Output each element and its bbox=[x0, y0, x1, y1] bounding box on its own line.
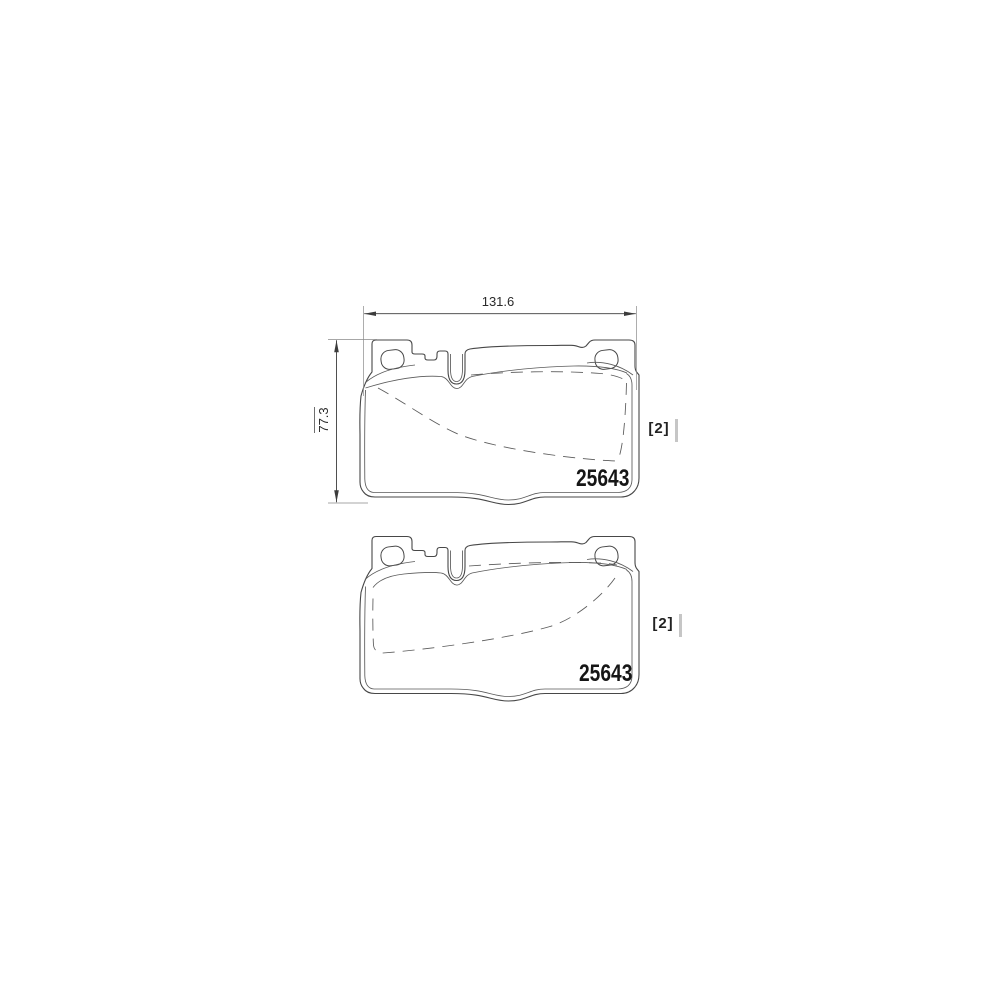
top-pad-hidden-top-edge bbox=[471, 372, 625, 380]
diagram-canvas: 131.6 77.3 25643 25643 [2] [2] bbox=[0, 0, 1000, 1000]
bottom-pad-part-number: 25643 bbox=[579, 660, 627, 684]
bottom-pad-friction-top-edge bbox=[373, 562, 627, 587]
top-quantity-side-bar bbox=[675, 419, 678, 442]
bottom-pad-hidden-top-edge bbox=[469, 562, 617, 566]
top-pad-hidden-chamfer-line bbox=[378, 388, 618, 461]
height-dimension bbox=[328, 340, 377, 504]
bottom-quantity-side-bar bbox=[679, 614, 682, 637]
top-pad-friction-top-edge bbox=[366, 366, 628, 389]
bottom-pad-quantity-label: [2] bbox=[647, 615, 679, 632]
width-dimension bbox=[364, 306, 637, 396]
top-pad-quantity-label: [2] bbox=[643, 420, 675, 437]
height-dimension-label: 77.3 bbox=[316, 396, 332, 444]
top-pad-part-number: 25643 bbox=[576, 465, 624, 489]
brake-pad-diagram-svg bbox=[0, 0, 1000, 1000]
top-pad-hidden-right-edge bbox=[618, 383, 627, 461]
bottom-pad-hidden-left-and-chamfer-line bbox=[373, 578, 615, 653]
width-dimension-label: 131.6 bbox=[458, 294, 538, 309]
